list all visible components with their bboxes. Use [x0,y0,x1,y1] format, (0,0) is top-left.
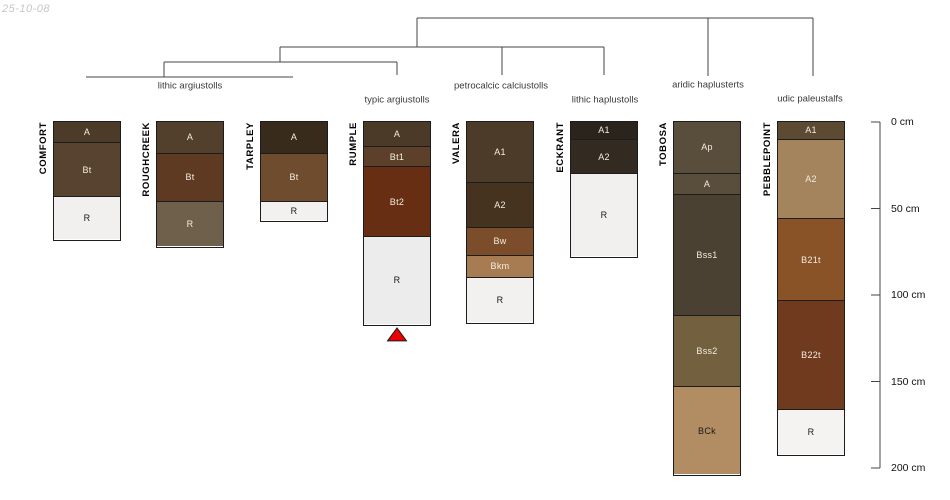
horizon-tarpley-bt: Bt [261,153,327,201]
profile-column-valera: A1A2BwBkmR [466,121,534,325]
horizon-eckrant-a2: A2 [571,139,637,174]
horizon-label: Ap [701,142,713,152]
horizon-roughcreek-a: A [157,122,223,153]
horizon-label: B22t [801,350,821,360]
profile-name-roughcreek: ROUGHCREEK [141,122,153,242]
horizon-tarpley-a: A [261,122,327,153]
profile-column-comfort: ABtR [53,121,121,242]
horizon-pebblepoint-b22t: B22t [778,300,844,409]
horizon-rumple-bt2: Bt2 [364,166,430,235]
horizon-label: Bss1 [696,250,717,260]
horizon-tarpley-r: R [261,201,327,220]
profile-name-eckrant: ECKRANT [555,122,567,242]
horizon-label: A2 [805,174,817,184]
horizon-pebblepoint-a1: A1 [778,122,844,139]
horizon-label: Bt1 [390,152,404,162]
horizon-label: A [84,127,90,137]
class-label-typic-argiustolls: typic argiustolls [365,95,430,106]
horizon-label: Bt [82,165,91,175]
class-label-aridic-haplusterts: aridic haplusterts [672,80,744,91]
class-label-lithic-haplustolls: lithic haplustolls [572,95,639,106]
horizon-tobosa-bss2: Bss2 [674,315,740,386]
profile-name-tobosa: TOBOSA [658,122,670,242]
horizon-label: Bw [493,236,506,246]
depth-tick-label: 200 cm [891,462,925,474]
horizon-label: Bt [289,172,298,182]
horizon-tobosa-a: A [674,173,740,194]
horizon-label: A [291,132,297,142]
profile-column-roughcreek: ABtR [156,121,224,249]
profile-column-tarpley: ABtR [260,121,328,223]
horizon-label: A [394,129,400,139]
horizon-label: A1 [598,125,610,135]
profile-name-rumple: RUMPLE [348,122,360,242]
horizon-rumple-r: R [364,236,430,324]
horizon-rumple-bt1: Bt1 [364,146,430,167]
depth-tick-label: 0 cm [891,116,914,128]
horizon-label: Bkm [491,261,510,271]
depth-tick-label: 100 cm [891,289,925,301]
horizon-tobosa-bss1: Bss1 [674,194,740,315]
horizon-label: A1 [805,125,817,135]
horizon-comfort-bt: Bt [54,142,120,196]
profile-name-comfort: COMFORT [38,122,50,242]
horizon-label: A [704,179,710,189]
horizon-comfort-r: R [54,196,120,239]
profile-column-eckrant: A1A2R [570,121,638,259]
horizon-label: A1 [494,147,506,157]
profile-column-pebblepoint: A1A2B21tB22tR [777,121,845,456]
horizon-label: Bss2 [696,346,717,356]
horizon-roughcreek-bt: Bt [157,153,223,201]
horizon-eckrant-a1: A1 [571,122,637,139]
depth-tick-label: 50 cm [891,203,920,215]
class-label-udic-paleustalfs: udic paleustalfs [777,94,842,105]
horizon-label: R [291,206,298,216]
rumple-marker-triangle-icon [388,328,407,341]
horizon-label: R [497,295,504,305]
horizon-tobosa-ap: Ap [674,122,740,174]
horizon-roughcreek-r: R [157,201,223,246]
horizon-label: R [394,275,401,285]
horizon-pebblepoint-b21t: B21t [778,218,844,299]
horizon-rumple-a: A [364,122,430,146]
soil-profile-chart: 25-10-08 0 cm50 cm100 cm150 cm200 cmlith… [0,0,950,500]
horizon-label: R [601,210,608,220]
horizon-label: R [187,219,194,229]
horizon-label: R [808,427,815,437]
profile-name-pebblepoint: PEBBLEPOINT [762,122,774,242]
horizon-valera-a1: A1 [467,122,533,183]
horizon-valera-a2: A2 [467,182,533,227]
profile-column-rumple: ABt1Bt2R [363,121,431,326]
horizon-pebblepoint-a2: A2 [778,139,844,219]
horizon-label: A2 [494,200,506,210]
horizon-label: BCk [698,426,716,436]
horizon-label: A2 [598,152,610,162]
profile-name-valera: VALERA [451,122,463,242]
horizon-label: Bt [185,172,194,182]
horizon-pebblepoint-r: R [778,409,844,454]
horizon-valera-r: R [467,277,533,322]
horizon-label: B21t [801,255,821,265]
horizon-comfort-a: A [54,122,120,143]
horizon-eckrant-r: R [571,173,637,256]
class-label-lithic-argiustolls: lithic argiustolls [158,81,222,92]
horizon-label: Bt2 [390,197,404,207]
profile-name-tarpley: TARPLEY [245,122,257,242]
class-label-petrocalcic-calciustolls: petrocalcic calciustolls [454,81,548,92]
depth-tick-label: 150 cm [891,376,925,388]
profile-column-tobosa: ApABss1Bss2BCk [673,121,741,477]
horizon-valera-bw: Bw [467,227,533,255]
horizon-tobosa-bck: BCk [674,386,740,474]
horizon-valera-bkm: Bkm [467,255,533,277]
horizon-label: R [84,213,91,223]
horizon-label: A [187,132,193,142]
